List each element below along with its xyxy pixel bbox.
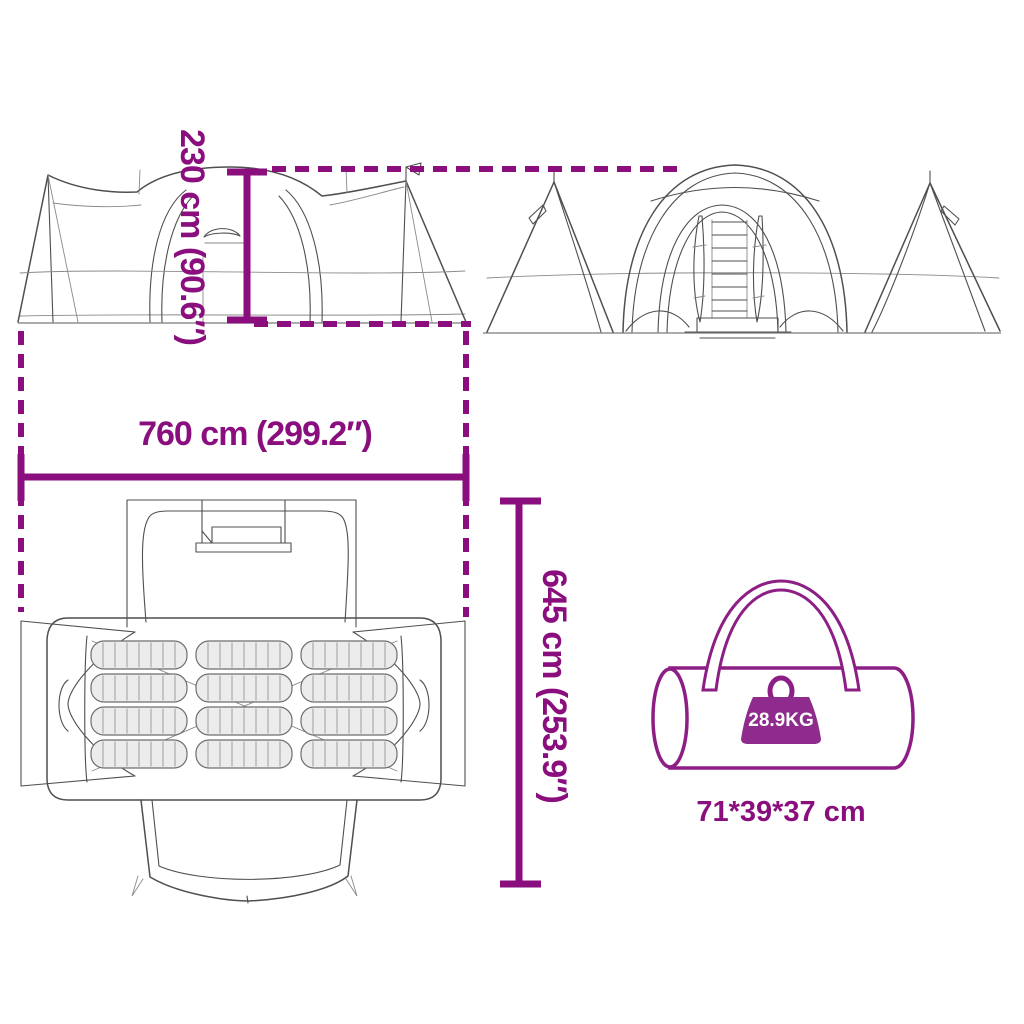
sleeping-pad <box>91 707 187 735</box>
front-divider-rungs <box>712 222 747 311</box>
sleeping-pad <box>196 707 292 735</box>
front-left-wing-inner-slope <box>554 182 613 332</box>
tent-side-view-illustration <box>18 163 467 323</box>
side-outline <box>18 167 466 322</box>
top-porch-inner <box>142 511 348 622</box>
front-right-wing-outer <box>930 183 1000 331</box>
bag-size-label: 71*39*37 cm <box>651 790 911 834</box>
top-left-wing-door-arc <box>59 680 68 731</box>
top-bottom-porch-tick <box>247 896 248 903</box>
top-left-stake-loop <box>132 876 143 896</box>
height-dimension-label: 230 cm (90.6″) <box>170 77 214 397</box>
sleeping-pad <box>301 740 397 768</box>
sleeping-pad <box>196 641 292 669</box>
top-inner-room-left <box>85 636 87 782</box>
front-right-vent-flap <box>941 206 959 225</box>
side-right-guy-line <box>406 181 432 322</box>
front-door-arch <box>658 205 786 332</box>
front-door-platform <box>697 318 778 332</box>
front-dome-inner <box>632 173 838 332</box>
front-left-wing-fold <box>554 182 601 332</box>
front-left-door-roll <box>694 216 704 322</box>
length-dimension-label: 760 cm (299.2″) <box>95 412 415 456</box>
side-hem-seam <box>20 314 465 316</box>
sleeping-pad <box>301 674 397 702</box>
top-bottom-porch-outer <box>141 800 357 901</box>
sleeping-pad <box>301 707 397 735</box>
tent-top-view-illustration <box>21 500 465 903</box>
top-porch-window-bar <box>196 543 291 552</box>
top-inner-room-right <box>401 636 403 782</box>
side-right-pole <box>401 181 406 322</box>
sleeping-pad <box>91 740 187 768</box>
front-left-wing-outer <box>487 182 554 332</box>
front-left-skirt <box>626 311 689 331</box>
front-right-door-roll <box>753 216 763 322</box>
top-right-stake-loop <box>346 876 357 896</box>
side-seam-upper-right <box>330 187 404 205</box>
length-dimension <box>21 331 466 617</box>
tent-front-view-illustration <box>483 165 1001 338</box>
sleeping-pad <box>301 641 397 669</box>
side-seam-middle <box>20 271 465 273</box>
side-dome-right-beam-outer <box>286 190 322 322</box>
diagram-canvas <box>0 0 1024 1024</box>
top-porch-window-sides <box>202 500 285 543</box>
top-bottom-porch-inner <box>152 800 347 879</box>
product-dimension-diagram: 230 cm (90.6″) 760 cm (299.2″) 645 cm (2… <box>0 0 1024 1024</box>
top-porch-window-inner <box>202 527 281 543</box>
sleeping-pad <box>196 740 292 768</box>
sleeping-pad <box>91 674 187 702</box>
front-right-wing-inner-slope <box>865 183 930 332</box>
top-right-wing-door-arc <box>420 680 429 731</box>
front-left-vent-flap <box>529 205 546 224</box>
front-right-skirt <box>780 311 843 331</box>
sleeping-pad <box>91 641 187 669</box>
sleeping-pads-group <box>91 641 397 768</box>
side-dome-right-beam-inner <box>279 196 310 322</box>
bag-end-cap <box>653 669 687 767</box>
front-right-wing-fold <box>872 183 930 332</box>
side-seam-upper-left <box>53 203 141 207</box>
carry-bag-illustration <box>653 581 913 768</box>
sleeping-pad <box>196 674 292 702</box>
bag-weight-label: 28.9KG <box>736 710 826 732</box>
front-right-wing-guy <box>930 183 985 331</box>
width-dimension-label: 645 cm (253.9″) <box>532 526 576 846</box>
top-porch-outer <box>127 500 356 627</box>
